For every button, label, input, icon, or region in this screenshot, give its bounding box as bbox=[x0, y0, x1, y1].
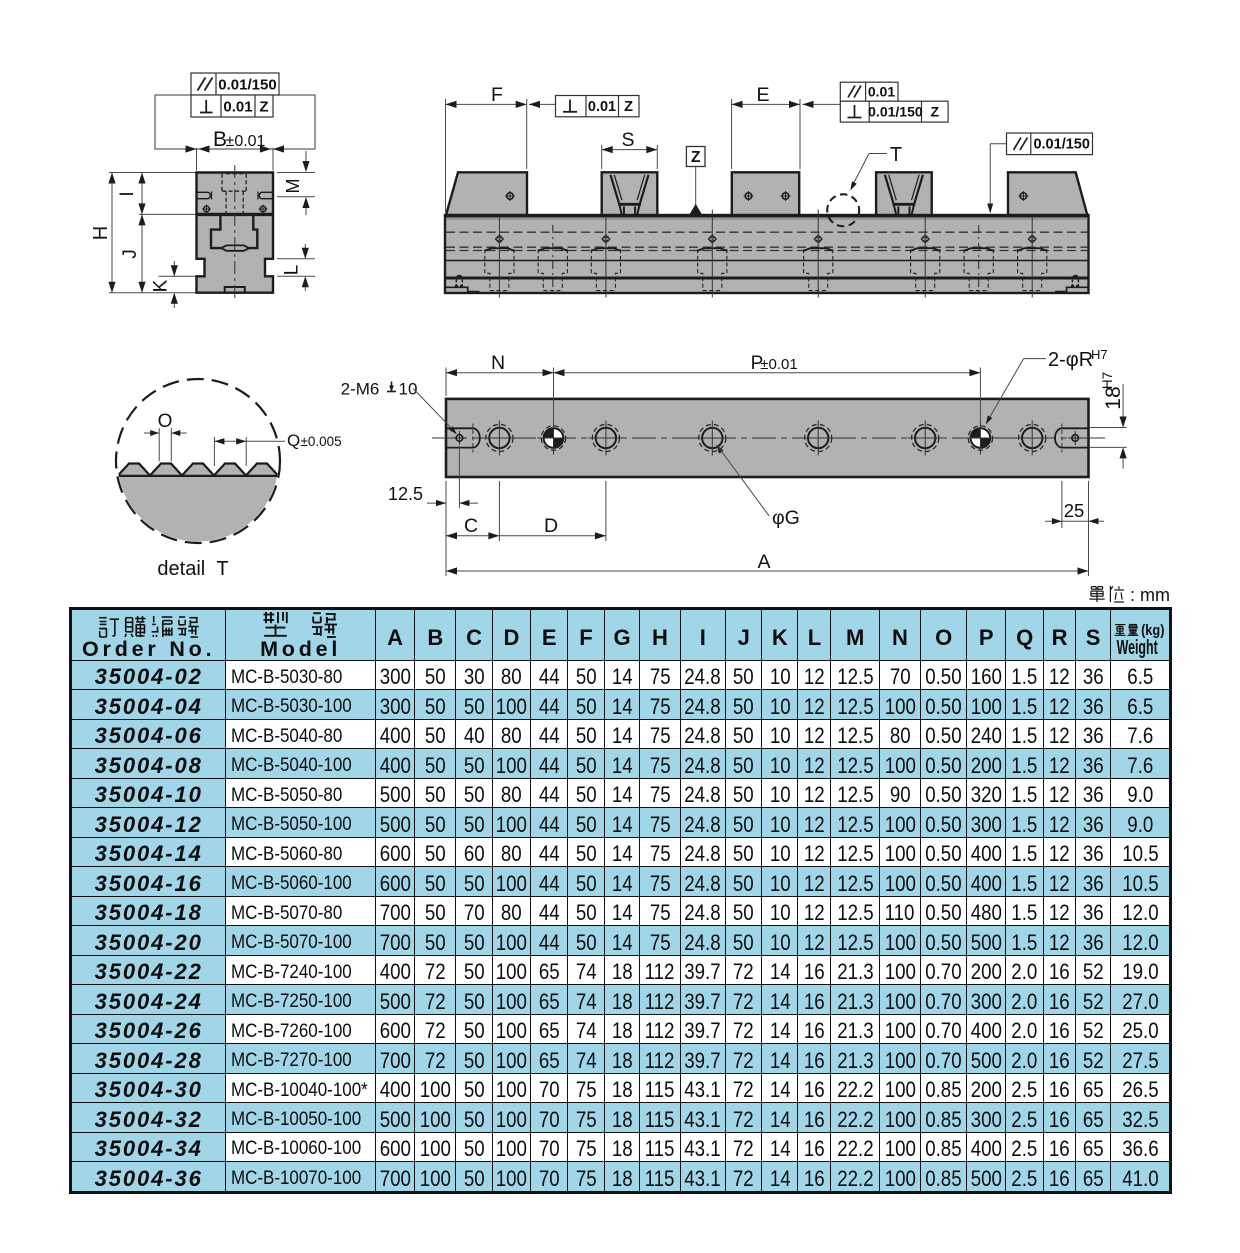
svg-text:φG: φG bbox=[772, 507, 800, 529]
svg-text:2-φR: 2-φR bbox=[1048, 349, 1093, 371]
svg-text:A: A bbox=[757, 551, 770, 573]
svg-text:E: E bbox=[756, 84, 769, 106]
svg-text:detail T: detail T bbox=[157, 558, 228, 580]
svg-text:C: C bbox=[464, 515, 478, 537]
svg-text:Z: Z bbox=[691, 149, 701, 166]
svg-text:0.01: 0.01 bbox=[223, 99, 252, 116]
svg-text:N: N bbox=[491, 352, 505, 374]
svg-text:L: L bbox=[282, 265, 303, 276]
svg-text:H7: H7 bbox=[1100, 372, 1115, 389]
svg-text:J: J bbox=[120, 249, 141, 259]
svg-text:F: F bbox=[491, 84, 503, 106]
svg-text:±0.01: ±0.01 bbox=[760, 356, 797, 373]
svg-text:0.01/150: 0.01/150 bbox=[868, 104, 923, 120]
svg-text:12.5: 12.5 bbox=[388, 484, 423, 504]
svg-text:D: D bbox=[544, 515, 558, 537]
svg-text:Z: Z bbox=[624, 99, 633, 115]
svg-text:Z: Z bbox=[931, 104, 940, 120]
svg-text:25: 25 bbox=[1064, 500, 1085, 521]
svg-text:I: I bbox=[117, 191, 138, 196]
svg-text:O: O bbox=[158, 411, 173, 432]
svg-text:K: K bbox=[151, 279, 172, 292]
svg-text:S: S bbox=[621, 129, 634, 151]
svg-text:2-M6: 2-M6 bbox=[341, 380, 380, 399]
svg-text:0.01: 0.01 bbox=[588, 99, 616, 115]
svg-text:0.01/150: 0.01/150 bbox=[1033, 137, 1089, 153]
svg-text:H7: H7 bbox=[1091, 347, 1108, 362]
svg-text:Z: Z bbox=[259, 99, 268, 116]
svg-text:0.01/150: 0.01/150 bbox=[218, 77, 276, 94]
svg-text:0.01: 0.01 bbox=[868, 84, 895, 100]
svg-text:10: 10 bbox=[399, 380, 418, 399]
svg-text:M: M bbox=[283, 179, 303, 194]
svg-text:±0.005: ±0.005 bbox=[301, 434, 342, 449]
svg-text:H: H bbox=[90, 226, 112, 240]
svg-text:Q: Q bbox=[287, 431, 300, 450]
svg-text:: mm: : mm bbox=[1130, 585, 1170, 605]
svg-text:±0.01: ±0.01 bbox=[226, 133, 266, 150]
svg-text:T: T bbox=[890, 144, 902, 166]
